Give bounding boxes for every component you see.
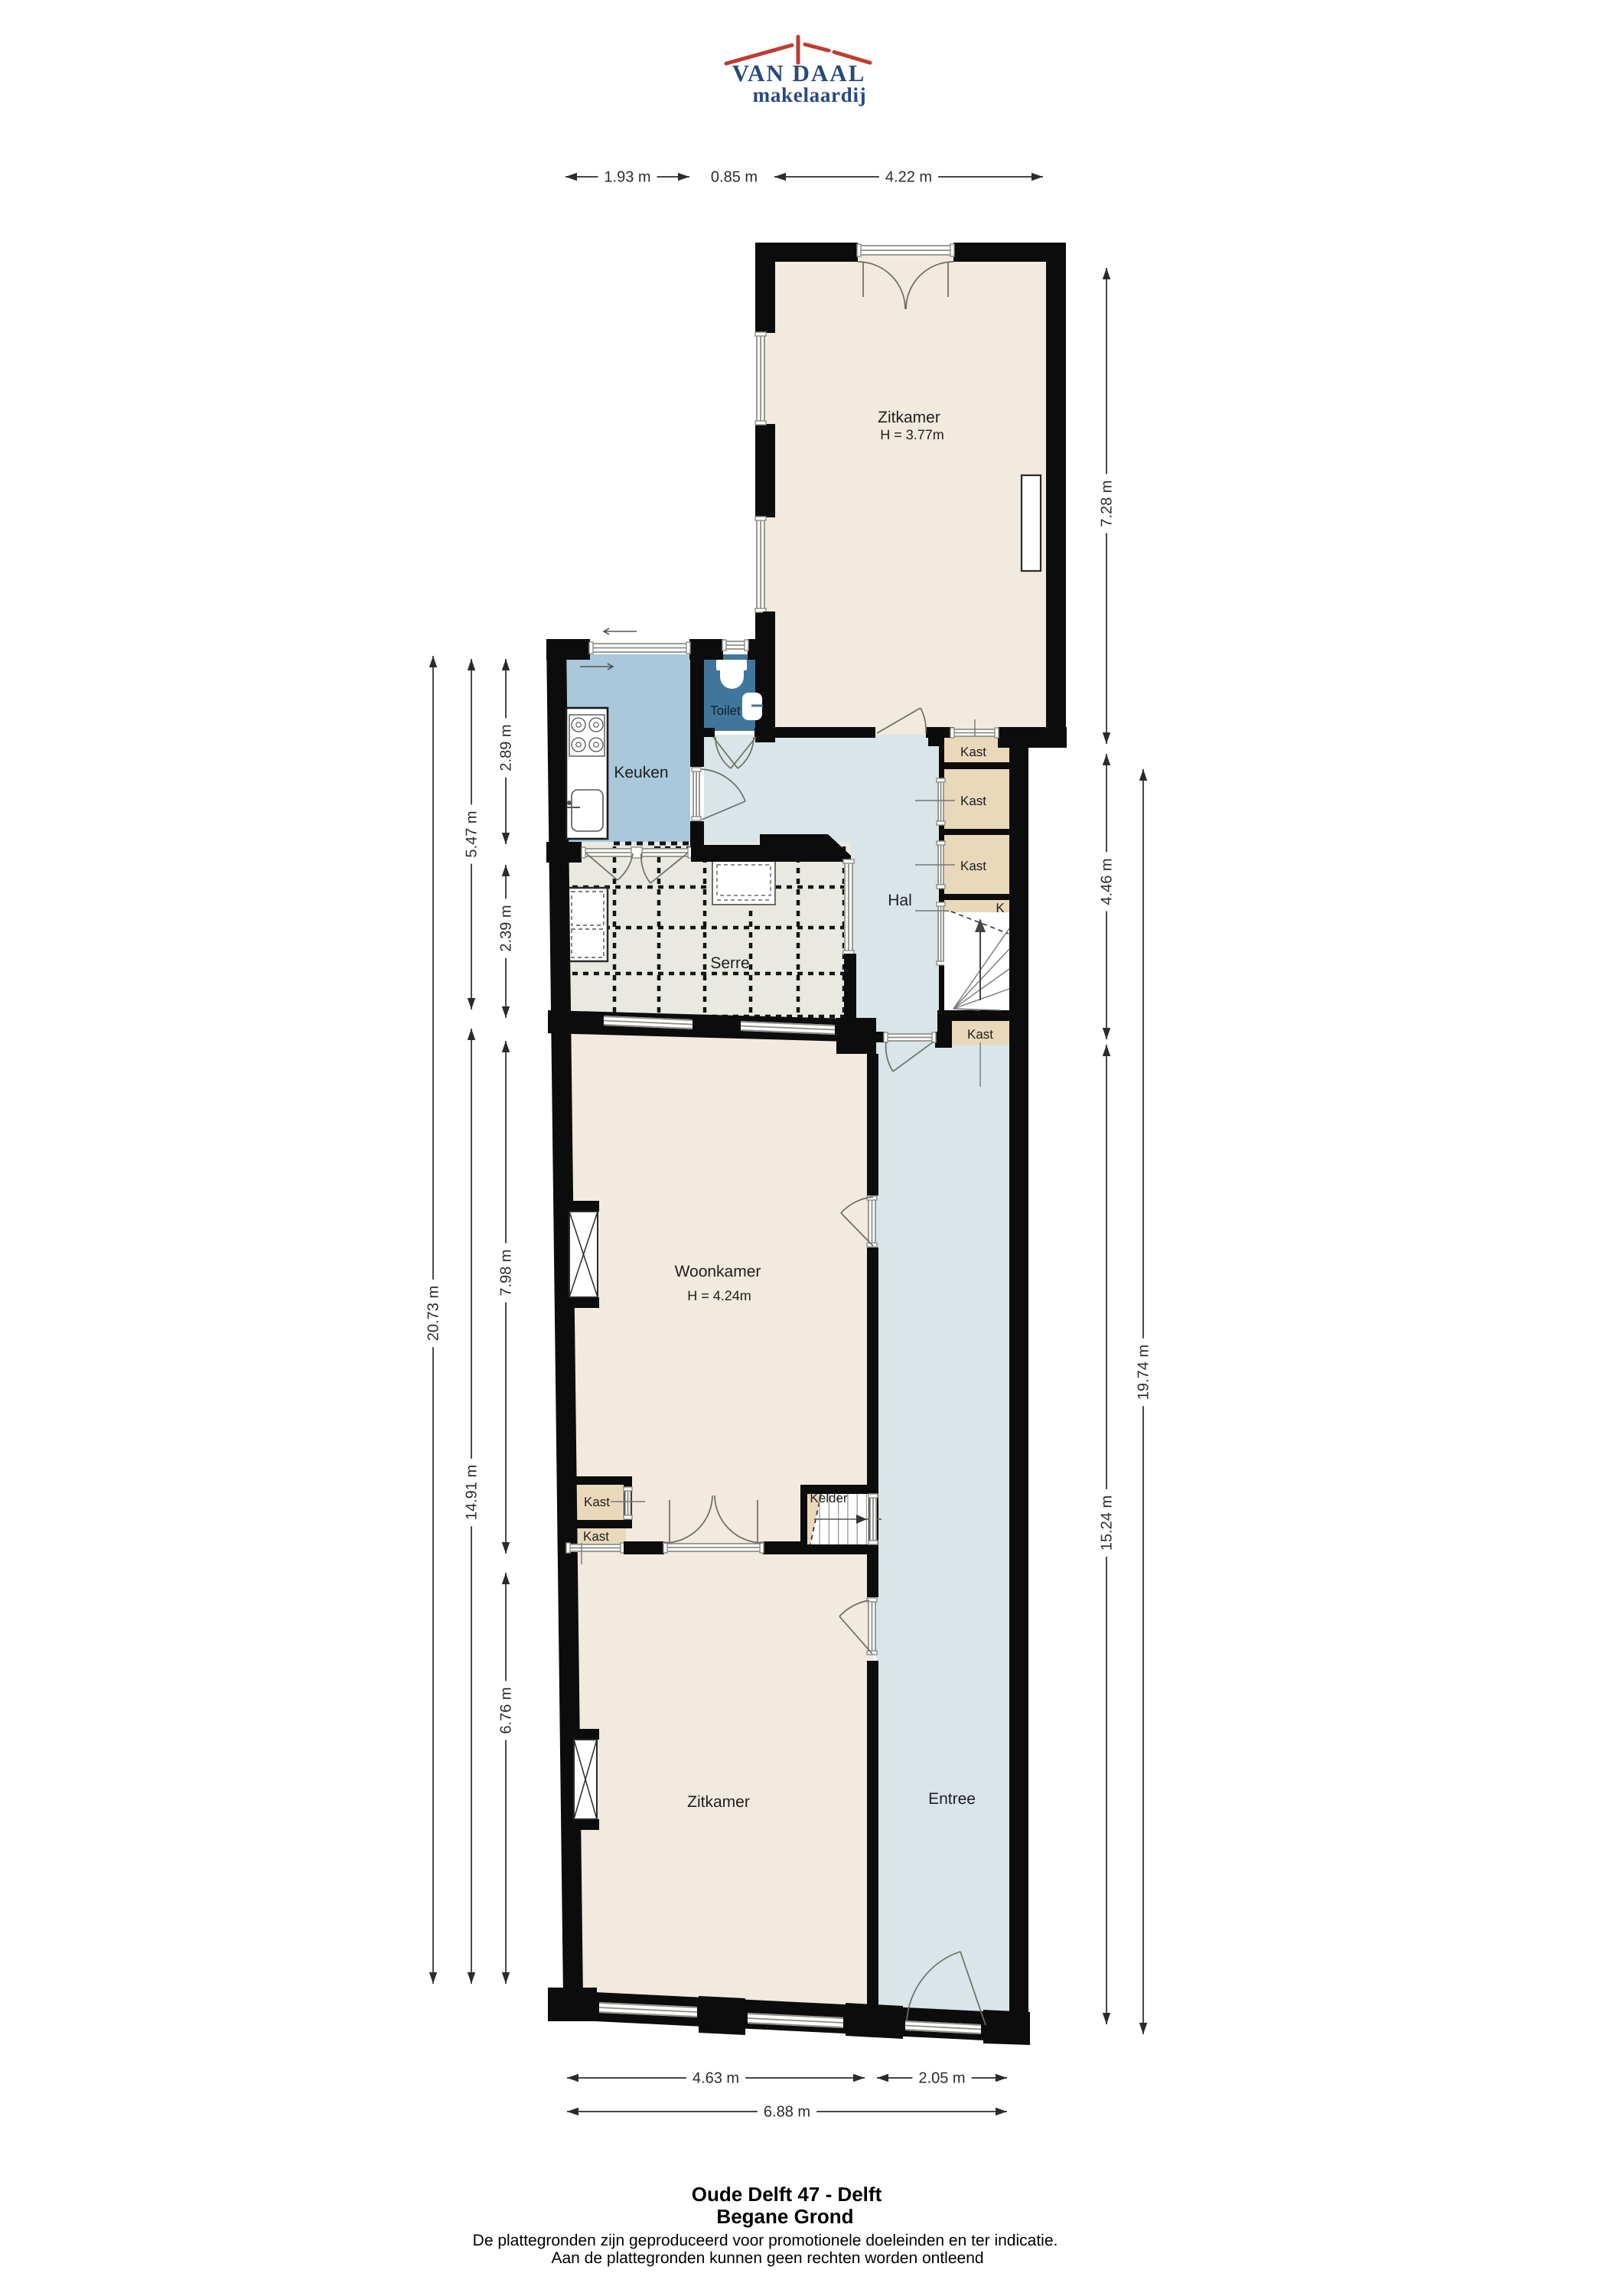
svg-text:15.24 m: 15.24 m <box>1099 1495 1116 1551</box>
svg-text:Woonkamer: Woonkamer <box>675 1263 761 1280</box>
svg-text:Zitkamer: Zitkamer <box>878 409 940 426</box>
svg-text:Kast: Kast <box>583 1529 609 1544</box>
svg-text:19.74 m: 19.74 m <box>1136 1345 1152 1400</box>
svg-text:6.76 m: 6.76 m <box>498 1687 515 1733</box>
svg-text:5.47 m: 5.47 m <box>464 810 481 857</box>
svg-text:H = 3.77m: H = 3.77m <box>880 427 944 442</box>
svg-text:makelaardij: makelaardij <box>753 83 867 106</box>
svg-text:4.63 m: 4.63 m <box>693 2070 739 2087</box>
svg-text:Hal: Hal <box>888 892 912 909</box>
svg-text:Kast: Kast <box>960 745 986 759</box>
svg-text:H = 4.24m: H = 4.24m <box>687 1288 751 1303</box>
svg-text:Oude Delft 47 - Delft: Oude Delft 47 - Delft <box>692 2183 882 2206</box>
svg-text:Aan de plattegronden kunnen ge: Aan de plattegronden kunnen geen rechten… <box>551 2249 983 2267</box>
svg-text:Toilet: Toilet <box>710 703 741 718</box>
svg-text:Serre: Serre <box>710 954 749 972</box>
svg-text:2.89 m: 2.89 m <box>498 724 515 771</box>
svg-text:7.98 m: 7.98 m <box>498 1249 515 1296</box>
svg-text:1.93 m: 1.93 m <box>604 169 650 186</box>
svg-text:De plattegronden zijn geproduc: De plattegronden zijn geproduceerd voor … <box>473 2232 1058 2249</box>
svg-text:2.39 m: 2.39 m <box>498 905 515 951</box>
svg-text:Kast: Kast <box>960 859 986 873</box>
svg-text:2.05 m: 2.05 m <box>918 2070 965 2087</box>
svg-text:Kast: Kast <box>960 794 986 808</box>
svg-text:20.73 m: 20.73 m <box>425 1286 442 1341</box>
svg-text:4.46 m: 4.46 m <box>1099 858 1116 905</box>
svg-text:K: K <box>996 901 1005 915</box>
svg-text:Keuken: Keuken <box>614 764 668 781</box>
svg-text:Zitkamer: Zitkamer <box>687 1793 750 1811</box>
svg-text:Kast: Kast <box>967 1027 993 1042</box>
svg-text:VAN DAAL: VAN DAAL <box>732 60 866 86</box>
svg-text:Entree: Entree <box>928 1790 976 1808</box>
svg-text:7.28 m: 7.28 m <box>1099 480 1116 527</box>
svg-text:Kelder: Kelder <box>810 1491 847 1505</box>
svg-text:14.91 m: 14.91 m <box>464 1465 481 1520</box>
svg-text:6.88 m: 6.88 m <box>764 2104 810 2121</box>
svg-text:4.22 m: 4.22 m <box>885 169 932 186</box>
svg-text:0.85 m: 0.85 m <box>711 169 758 186</box>
svg-text:Kast: Kast <box>584 1495 610 1509</box>
svg-text:Begane Grond: Begane Grond <box>716 2205 853 2228</box>
